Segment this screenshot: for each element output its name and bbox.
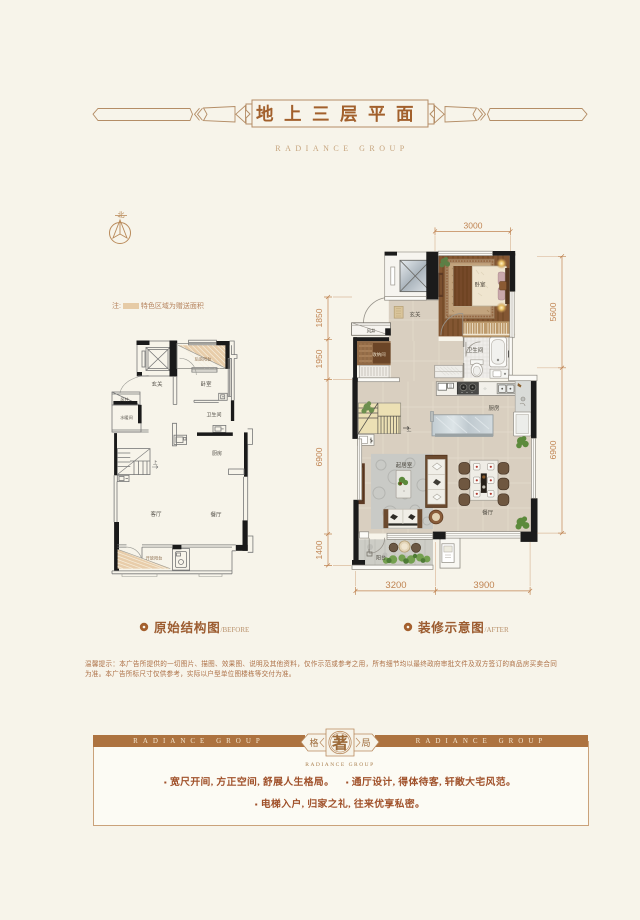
svg-text:3900: 3900 xyxy=(473,580,494,591)
svg-text:北: 北 xyxy=(118,211,125,219)
svg-text:餐厅: 餐厅 xyxy=(482,509,494,517)
svg-text:RADIANCE GROUP: RADIANCE GROUP xyxy=(275,144,408,153)
svg-text:1400: 1400 xyxy=(315,540,324,559)
svg-text:1950: 1950 xyxy=(315,349,324,368)
svg-text:客厅: 客厅 xyxy=(150,510,162,518)
svg-text:6900: 6900 xyxy=(548,440,558,459)
svg-text:卫生间: 卫生间 xyxy=(206,412,221,419)
svg-text:厨房: 厨房 xyxy=(488,404,500,412)
svg-text:6900: 6900 xyxy=(315,447,324,466)
svg-text:1850: 1850 xyxy=(315,308,324,327)
svg-text:格: 格 xyxy=(309,737,318,748)
svg-text:起居室: 起居室 xyxy=(396,461,413,469)
svg-text:阳台: 阳台 xyxy=(376,555,386,562)
svg-text:3000: 3000 xyxy=(464,221,483,231)
svg-text:玄关: 玄关 xyxy=(151,380,163,388)
svg-text:风井: 风井 xyxy=(120,396,128,403)
svg-text:后退阳台: 后退阳台 xyxy=(195,356,212,363)
svg-text:5600: 5600 xyxy=(548,302,558,321)
svg-text:著: 著 xyxy=(331,734,348,753)
svg-text:玄关: 玄关 xyxy=(409,311,421,319)
svg-text:餐厅: 餐厅 xyxy=(210,511,222,519)
svg-text:风井: 风井 xyxy=(367,328,376,335)
svg-text:开放阳台: 开放阳台 xyxy=(146,555,163,562)
svg-text:RADIANCE GROUP: RADIANCE GROUP xyxy=(305,762,374,768)
svg-text:3200: 3200 xyxy=(385,580,406,591)
svg-text:卧室: 卧室 xyxy=(474,281,486,289)
svg-text:上: 上 xyxy=(407,426,412,433)
svg-text:地上三层平面: 地上三层平面 xyxy=(256,104,424,124)
svg-text:上: 上 xyxy=(153,459,158,465)
svg-text:局: 局 xyxy=(361,738,370,748)
svg-text:卧室: 卧室 xyxy=(200,380,212,388)
svg-text:厨房: 厨房 xyxy=(212,450,222,457)
svg-text:水暖间: 水暖间 xyxy=(120,414,133,421)
svg-text:收纳间: 收纳间 xyxy=(372,351,385,358)
svg-text:卫生间: 卫生间 xyxy=(467,346,484,354)
